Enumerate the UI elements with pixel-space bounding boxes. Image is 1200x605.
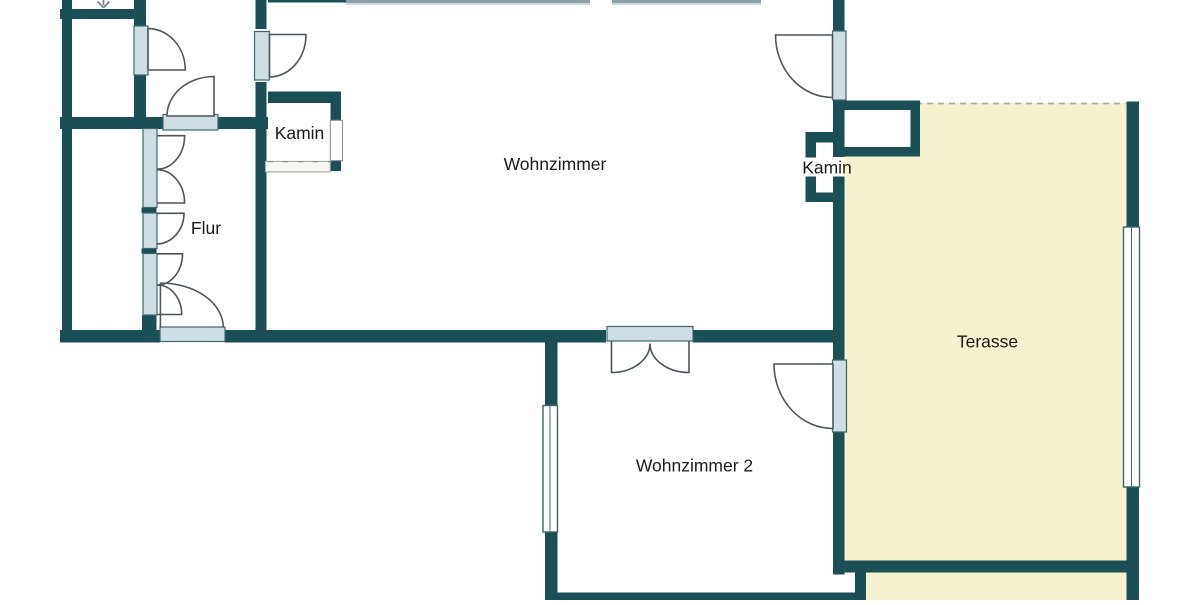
svg-text:Kamin: Kamin [802,158,852,178]
svg-text:Flur: Flur [191,218,221,238]
svg-text:Wohnzimmer: Wohnzimmer [504,154,607,174]
svg-text:Terasse: Terasse [957,332,1018,352]
svg-text:Kamin: Kamin [275,123,325,143]
svg-text:Wohnzimmer 2: Wohnzimmer 2 [636,456,753,476]
